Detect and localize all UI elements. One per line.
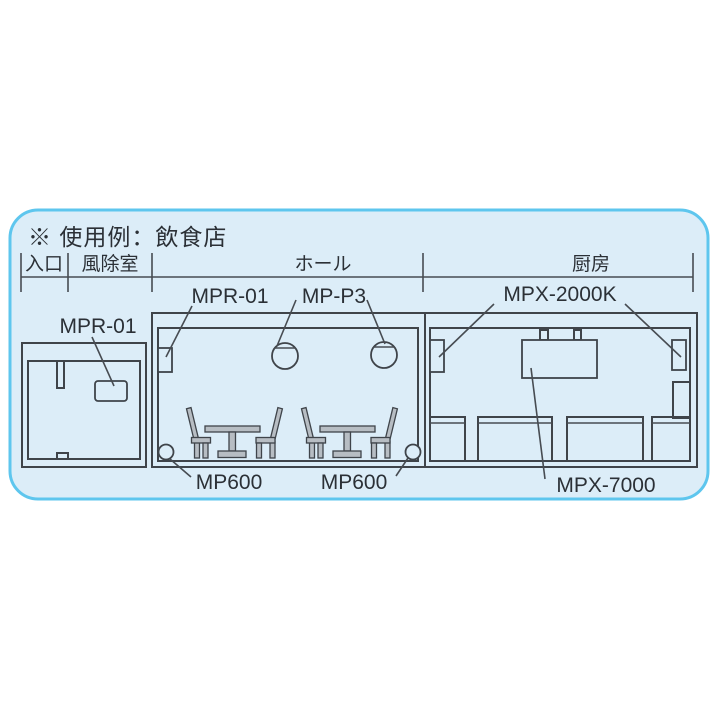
device-mpr01-entry bbox=[95, 381, 127, 401]
device-mp600-left bbox=[159, 445, 174, 460]
label-mpr01-hall: MPR-01 bbox=[191, 285, 268, 308]
screenshot-canvas: ※ 使用例：飲食店 入口 風除室 ホール 厨房 bbox=[0, 0, 713, 713]
pendant-light-right bbox=[371, 342, 397, 368]
label-mpx7000: MPX-7000 bbox=[556, 474, 655, 497]
label-mpp3: MP-P3 bbox=[302, 285, 366, 308]
panel-title: ※ 使用例：飲食店 bbox=[28, 224, 227, 250]
label-mpx2000k: MPX-2000K bbox=[503, 283, 616, 306]
pendant-light-left bbox=[272, 343, 298, 369]
device-mpr01-hall bbox=[158, 348, 172, 372]
device-mp600-right bbox=[406, 445, 421, 460]
device-mpx2000k-left bbox=[430, 340, 444, 372]
label-mp600-right: MP600 bbox=[321, 471, 388, 494]
label-mp600-left: MP600 bbox=[196, 471, 263, 494]
label-mpr01-entry: MPR-01 bbox=[59, 315, 136, 338]
section-label-kitchen: 厨房 bbox=[572, 253, 610, 275]
section-label-hall: ホール bbox=[294, 254, 351, 275]
usage-example-diagram: ※ 使用例：飲食店 入口 風除室 ホール 厨房 bbox=[0, 0, 713, 713]
section-label-windbreak: 風除室 bbox=[81, 253, 138, 275]
section-label-entrance: 入口 bbox=[25, 254, 63, 275]
